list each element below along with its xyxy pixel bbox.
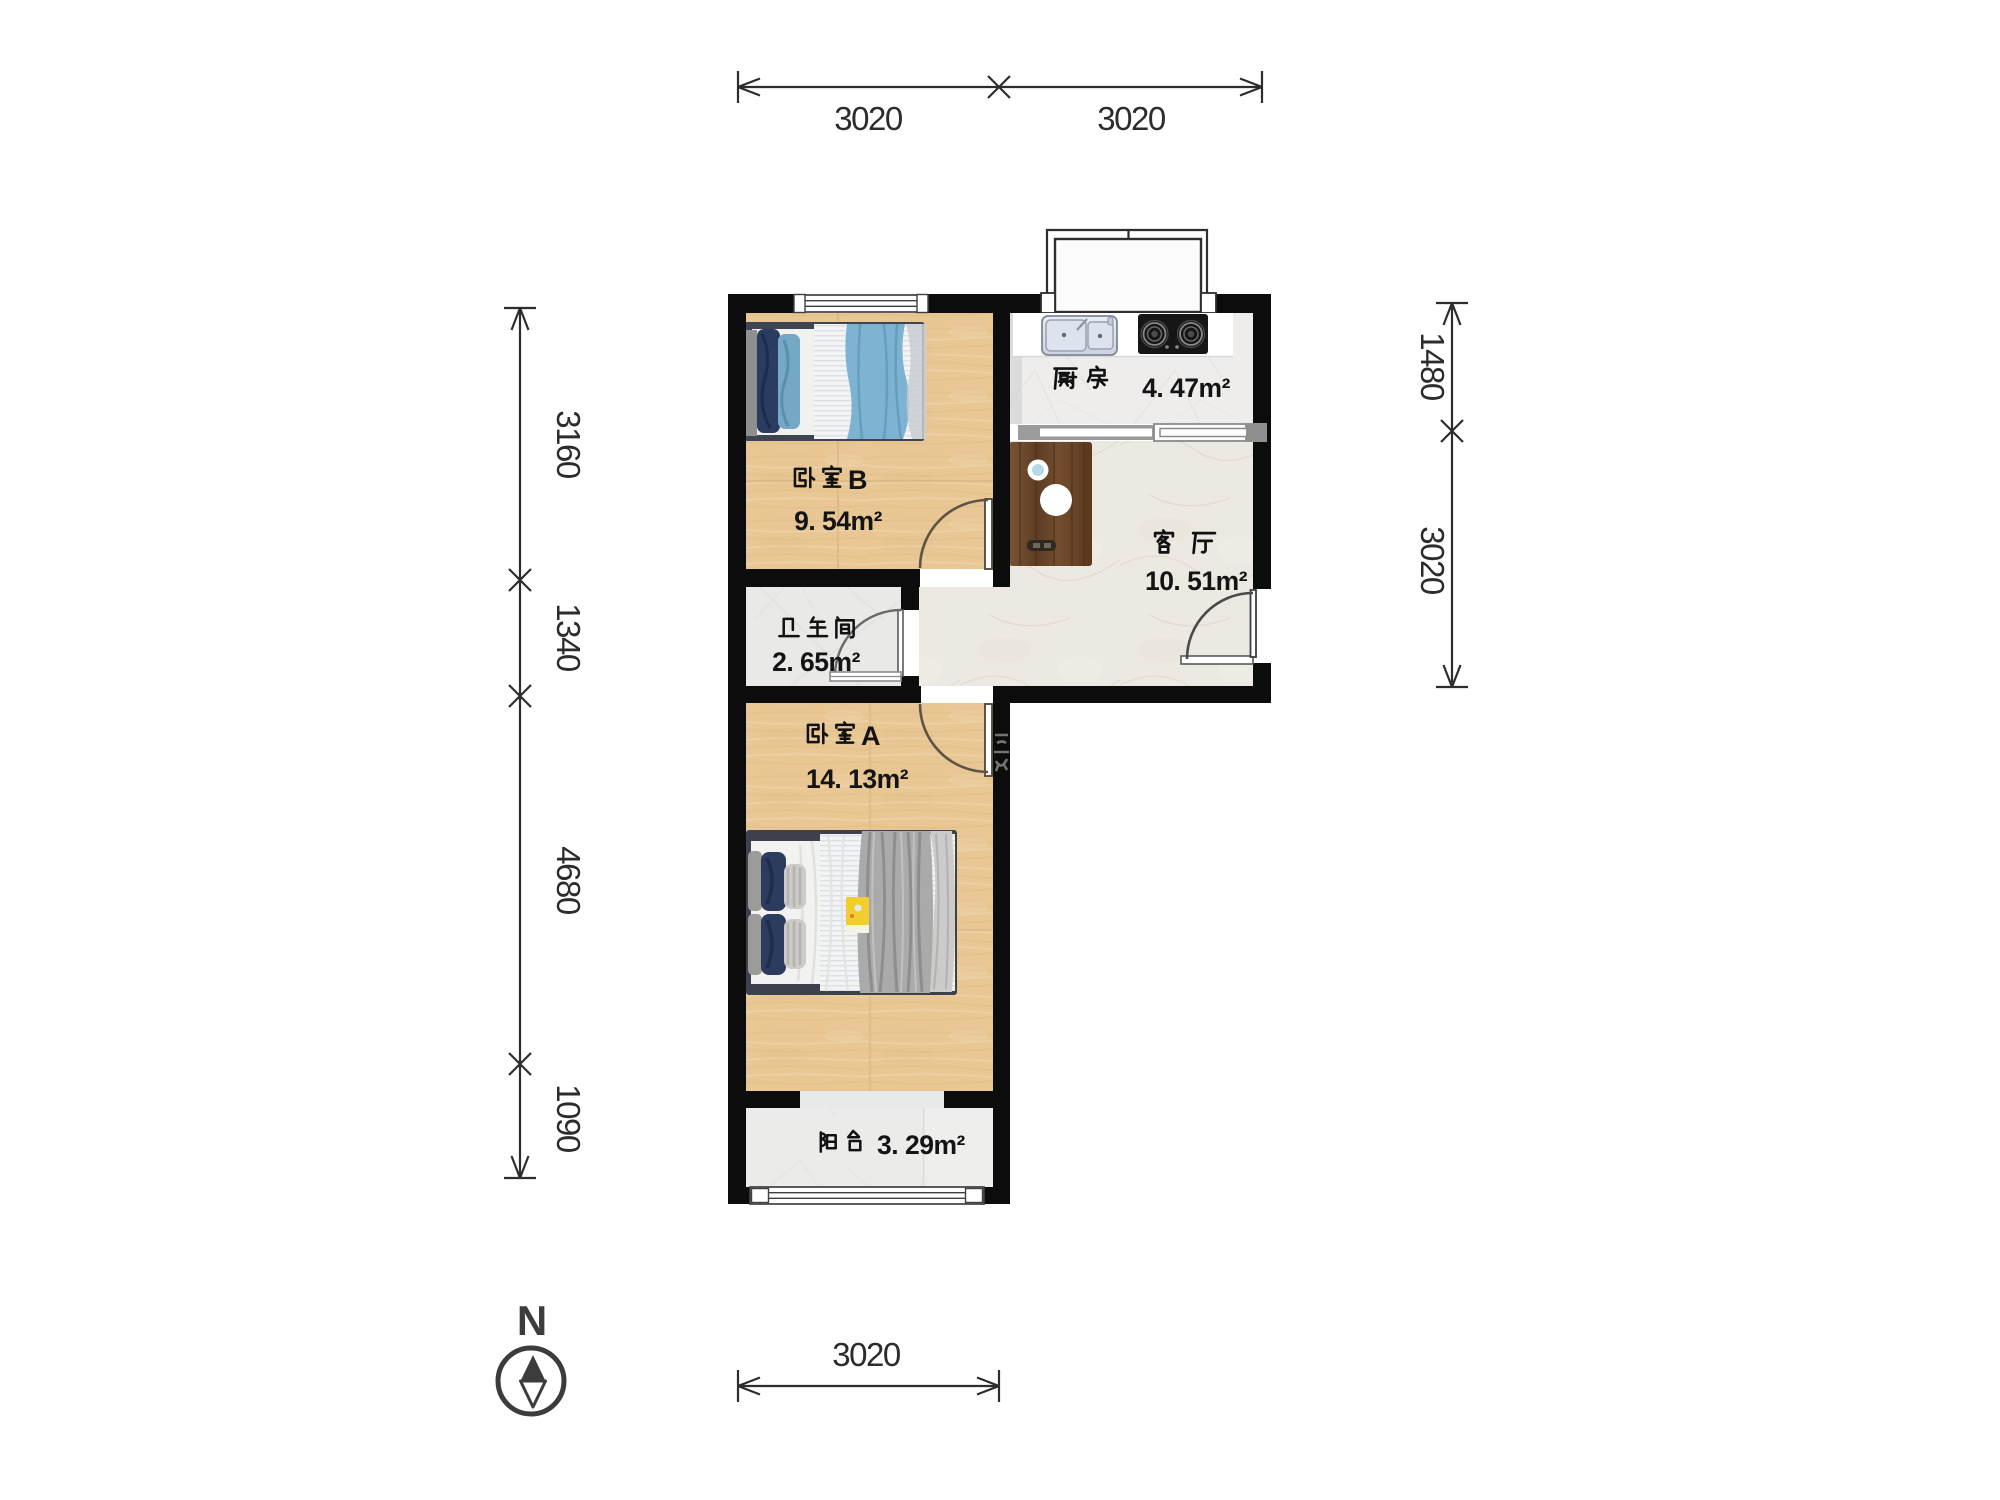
svg-text:1090: 1090 (550, 1084, 587, 1153)
svg-text:B: B (848, 465, 868, 495)
svg-text:A: A (861, 721, 881, 751)
svg-text:3020: 3020 (1097, 100, 1166, 137)
svg-text:4. 47m²: 4. 47m² (1142, 373, 1231, 403)
svg-text:1480: 1480 (1414, 332, 1451, 401)
svg-text:9. 54m²: 9. 54m² (794, 506, 883, 536)
svg-text:3020: 3020 (1414, 526, 1451, 595)
svg-text:N: N (517, 1297, 547, 1344)
svg-text:4680: 4680 (550, 846, 587, 915)
svg-text:2. 65m²: 2. 65m² (772, 647, 861, 677)
svg-text:3020: 3020 (832, 1336, 901, 1373)
svg-text:3020: 3020 (834, 100, 903, 137)
svg-text:3160: 3160 (550, 410, 587, 479)
svg-text:14. 13m²: 14. 13m² (806, 764, 909, 794)
svg-text:10. 51m²: 10. 51m² (1145, 566, 1248, 596)
svg-text:1340: 1340 (550, 603, 587, 672)
svg-text:3. 29m²: 3. 29m² (877, 1130, 966, 1160)
